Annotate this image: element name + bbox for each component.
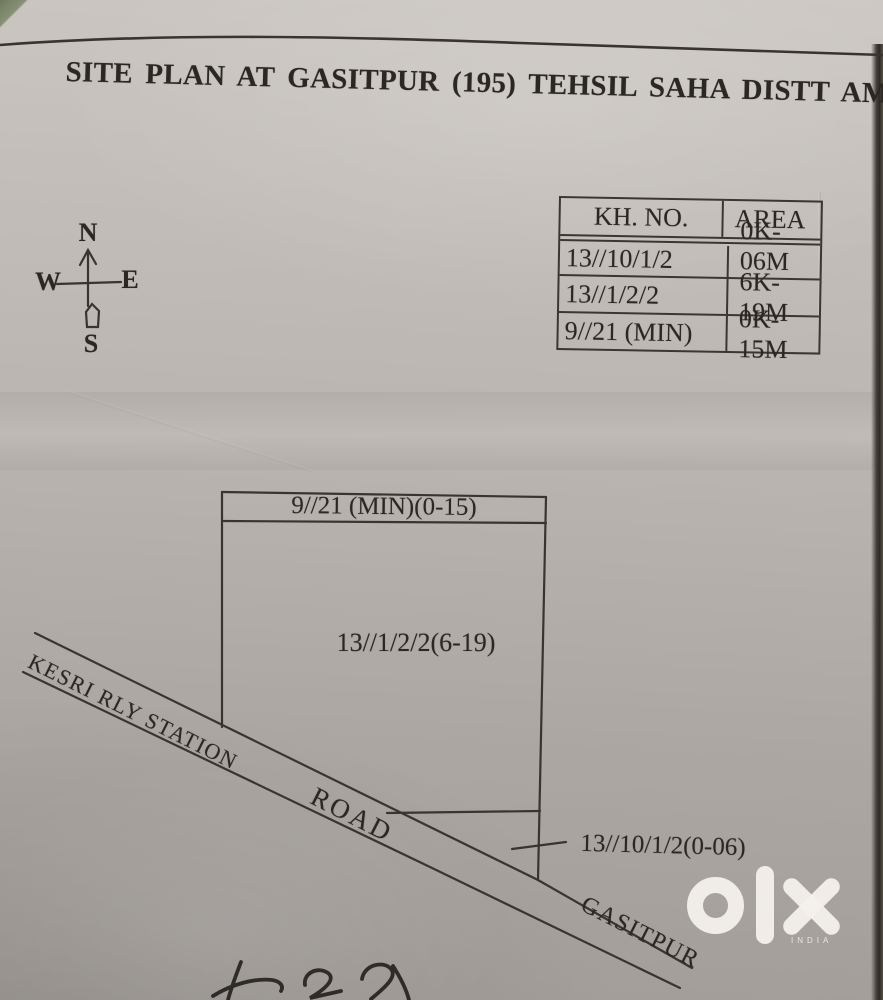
signature-handwriting xyxy=(213,962,409,1000)
compass-horizontal-line xyxy=(57,282,121,284)
khasra-area-table: KH. NO. AREA 13//10/1/2 0K-06M 13//1/2/2… xyxy=(556,196,823,355)
compass-south-tail xyxy=(86,304,99,327)
header-kh-no: KH. NO. xyxy=(560,198,724,237)
plot-strip-divider xyxy=(223,521,546,523)
cell-kh-no: 9//21 (MIN) xyxy=(558,313,728,351)
cell-area: 0K-15M xyxy=(727,316,819,353)
table-header-row: KH. NO. AREA xyxy=(560,198,821,239)
compass-rose xyxy=(57,250,121,327)
main-parcel-label: 13//1/2/2(6-19) xyxy=(337,628,496,658)
road-sliver-parcel-label: 13//10/1/2(0-06) xyxy=(580,830,746,862)
compass-south-label: S xyxy=(84,329,98,359)
top-strip-parcel-label: 9//21 (MIN)(0-15) xyxy=(291,492,477,522)
sheet-border-top-line xyxy=(0,37,883,55)
header-area: AREA xyxy=(723,201,821,239)
table-row: 9//21 (MIN) 0K-15M xyxy=(558,311,819,353)
compass-north-label: N xyxy=(79,218,98,248)
olx-o-icon xyxy=(687,877,744,934)
cell-kh-no: 13//1/2/2 xyxy=(559,276,729,314)
scanned-paper-background: SITE PLAN AT GASITPUR (195) TEHSIL SAHA … xyxy=(0,0,883,1000)
compass-west-label: W xyxy=(35,267,61,297)
compass-east-label: E xyxy=(121,265,138,295)
olx-l-icon xyxy=(756,866,774,944)
olx-logo xyxy=(680,860,860,960)
plot-bottom-edge xyxy=(387,811,540,813)
cell-kh-no: 13//10/1/2 xyxy=(560,243,730,277)
olx-country-label: INDIA xyxy=(791,936,832,945)
plot-right-edge xyxy=(538,497,546,880)
